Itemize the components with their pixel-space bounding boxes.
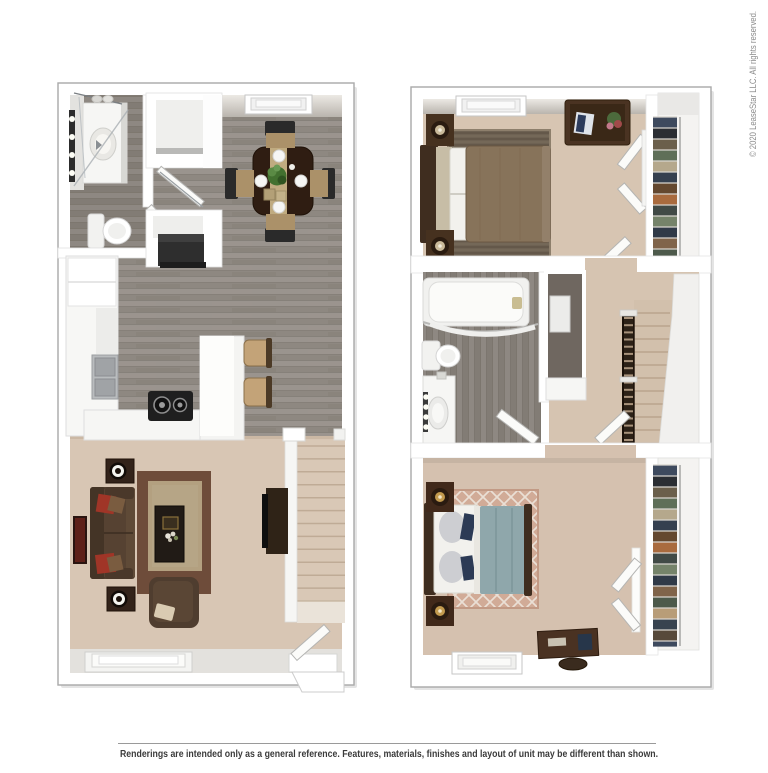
svg-text:© 2020 LeaseStar LLC. All righ: © 2020 LeaseStar LLC. All rights reserve… — [748, 11, 758, 157]
svg-text:Renderings are intended only a: Renderings are intended only as a genera… — [120, 749, 658, 760]
